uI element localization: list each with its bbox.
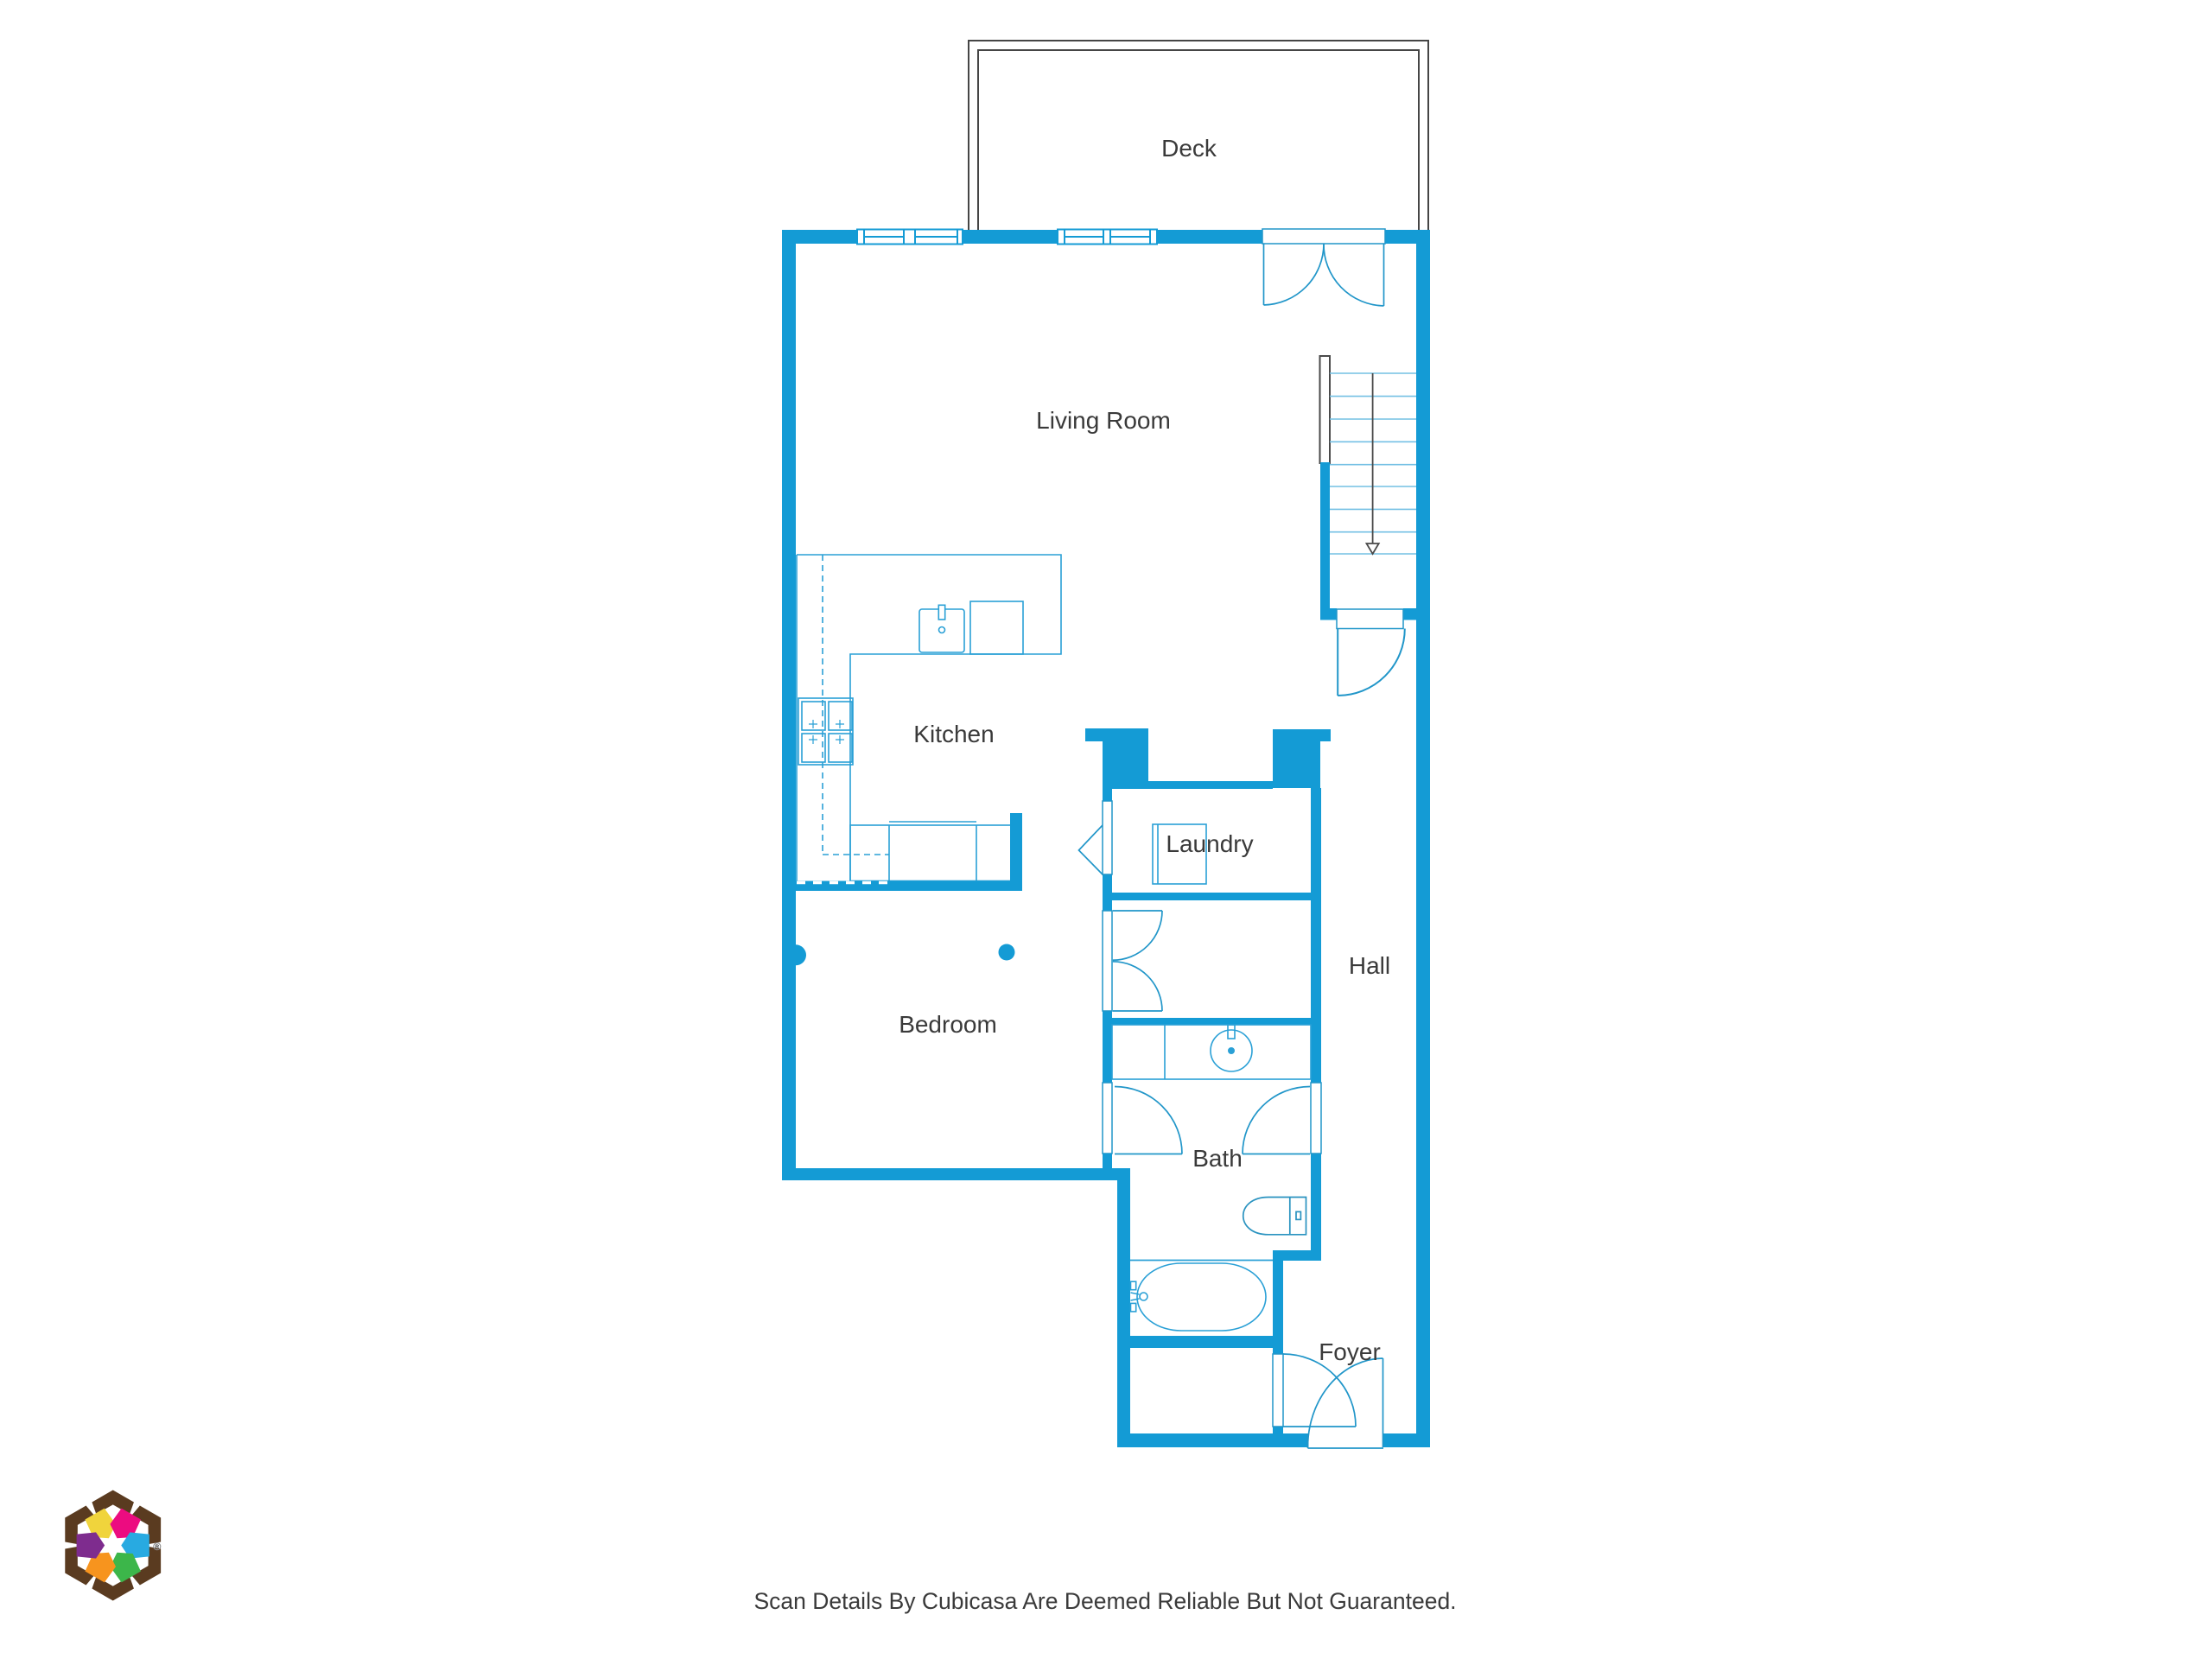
svg-text:Hall: Hall bbox=[1349, 952, 1390, 979]
svg-text:Laundry: Laundry bbox=[1166, 830, 1253, 857]
svg-text:Bath: Bath bbox=[1192, 1145, 1243, 1172]
svg-text:Bedroom: Bedroom bbox=[899, 1011, 997, 1038]
svg-text:Deck: Deck bbox=[1161, 135, 1217, 162]
svg-text:Living Room: Living Room bbox=[1036, 407, 1171, 434]
svg-text:Kitchen: Kitchen bbox=[913, 721, 994, 747]
svg-text:Foyer: Foyer bbox=[1319, 1338, 1381, 1365]
svg-text:Scan Details By Cubicasa Are D: Scan Details By Cubicasa Are Deemed Reli… bbox=[753, 1588, 1456, 1614]
svg-text:R: R bbox=[155, 1544, 159, 1550]
